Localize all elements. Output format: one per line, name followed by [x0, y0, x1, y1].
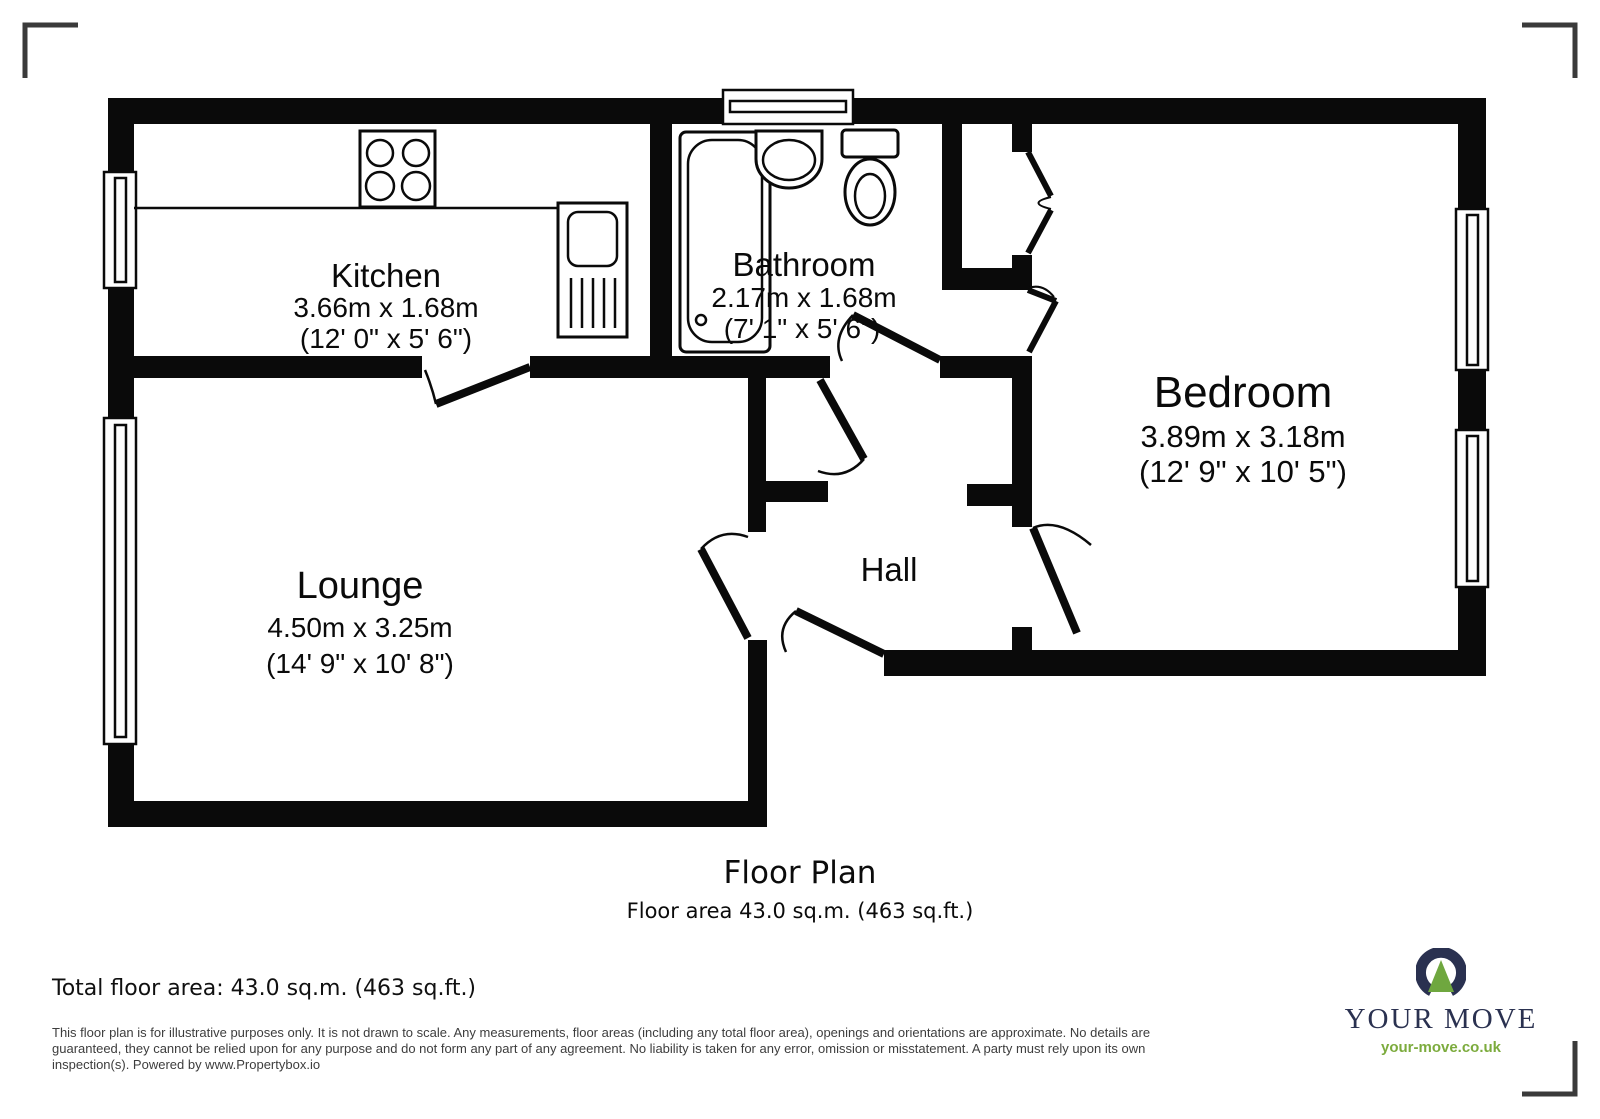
kitchen-dim-metric: 3.66m x 1.68m: [293, 292, 478, 323]
kitchen-window-icon: [104, 172, 136, 288]
bedroom-dim-metric: 3.89m x 3.18m: [1140, 419, 1345, 454]
wall-hall-left-stub: [766, 481, 828, 502]
disclaimer-line-2: guaranteed, they cannot be relied upon f…: [52, 1041, 1292, 1057]
disclaimer: This floor plan is for illustrative purp…: [52, 1025, 1292, 1073]
hall-label: Hall: [861, 551, 918, 588]
lounge-door-swing-icon: [701, 534, 748, 638]
wall-hall-left-upper: [748, 356, 766, 532]
wall-bedroom-stub: [967, 484, 1012, 506]
lounge-dim-metric: 4.50m x 3.25m: [267, 612, 452, 643]
inner-hall-door-swing-icon: [818, 380, 864, 474]
hob-icon: [360, 131, 435, 207]
wall-bottom-right: [884, 650, 1486, 676]
total-floor-area: Total floor area: 43.0 sq.m. (463 sq.ft.…: [52, 976, 476, 1001]
bathroom-window-icon: [723, 90, 853, 124]
logo-website-text: your-move.co.uk: [1330, 1039, 1552, 1056]
wall-kitchen-bottom: [134, 356, 422, 378]
wall-bathroom-left: [650, 124, 672, 356]
your-move-logo-icon: [1416, 948, 1466, 998]
bedroom-label: Bedroom: [1154, 368, 1333, 417]
toilet-icon: [842, 130, 898, 225]
cupboard-doors-icon: [1028, 152, 1056, 352]
bedroom-door-swing-icon: [1033, 525, 1091, 633]
wash-basin-icon: [756, 131, 822, 188]
lounge-window-icon: [104, 418, 136, 744]
logo-brand-text: YOUR MOVE: [1330, 1003, 1552, 1036]
kitchen-sink-icon: [558, 203, 627, 337]
bathroom-dim-metric: 2.17m x 1.68m: [711, 282, 896, 313]
kitchen-dim-imperial: (12' 0" x 5' 6"): [300, 323, 472, 354]
bedroom-window-1-icon: [1456, 209, 1488, 370]
wall-cupboard-stub-mid: [1012, 255, 1032, 290]
lounge-label: Lounge: [297, 565, 424, 607]
floor-area-line: Floor area 43.0 sq.m. (463 sq.ft.): [0, 899, 1600, 923]
kitchen-label: Kitchen: [331, 257, 441, 294]
bedroom-dim-imperial: (12' 9" x 10' 5"): [1139, 454, 1347, 489]
wall-cupboard-stub-top: [1012, 124, 1032, 152]
agency-logo: YOUR MOVE your-move.co.uk: [1330, 948, 1552, 1056]
disclaimer-line-3: inspection(s). Powered by www.Propertybo…: [52, 1057, 1292, 1073]
wall-bathroom-right: [942, 124, 962, 290]
lounge-dim-imperial: (14' 9" x 10' 8"): [266, 648, 454, 679]
floor-plan-page: Kitchen 3.66m x 1.68m (12' 0" x 5' 6") B…: [0, 0, 1600, 1119]
wall-right: [1458, 98, 1486, 676]
disclaimer-line-1: This floor plan is for illustrative purp…: [52, 1025, 1292, 1041]
cupboard-door-tip-curve: [1039, 197, 1052, 209]
wall-lounge-right: [748, 640, 767, 827]
kitchen-door-swing-icon: [425, 367, 530, 404]
bathroom-dim-imperial: (7' 1" x 5' 6"): [724, 313, 881, 344]
bathroom-label: Bathroom: [732, 246, 875, 283]
wall-lounge-bottom: [108, 801, 767, 827]
crop-mark-top-left-icon: [25, 25, 78, 78]
wall-bathroom-bottom: [530, 356, 830, 378]
bedroom-window-2-icon: [1456, 430, 1488, 587]
crop-mark-top-right-icon: [1522, 25, 1575, 78]
page-title: Floor Plan: [0, 855, 1600, 891]
front-door-swing-icon: [782, 611, 884, 654]
wall-bedroom-door-jamb: [1012, 627, 1032, 650]
wall-bedroom-left: [1012, 356, 1032, 527]
